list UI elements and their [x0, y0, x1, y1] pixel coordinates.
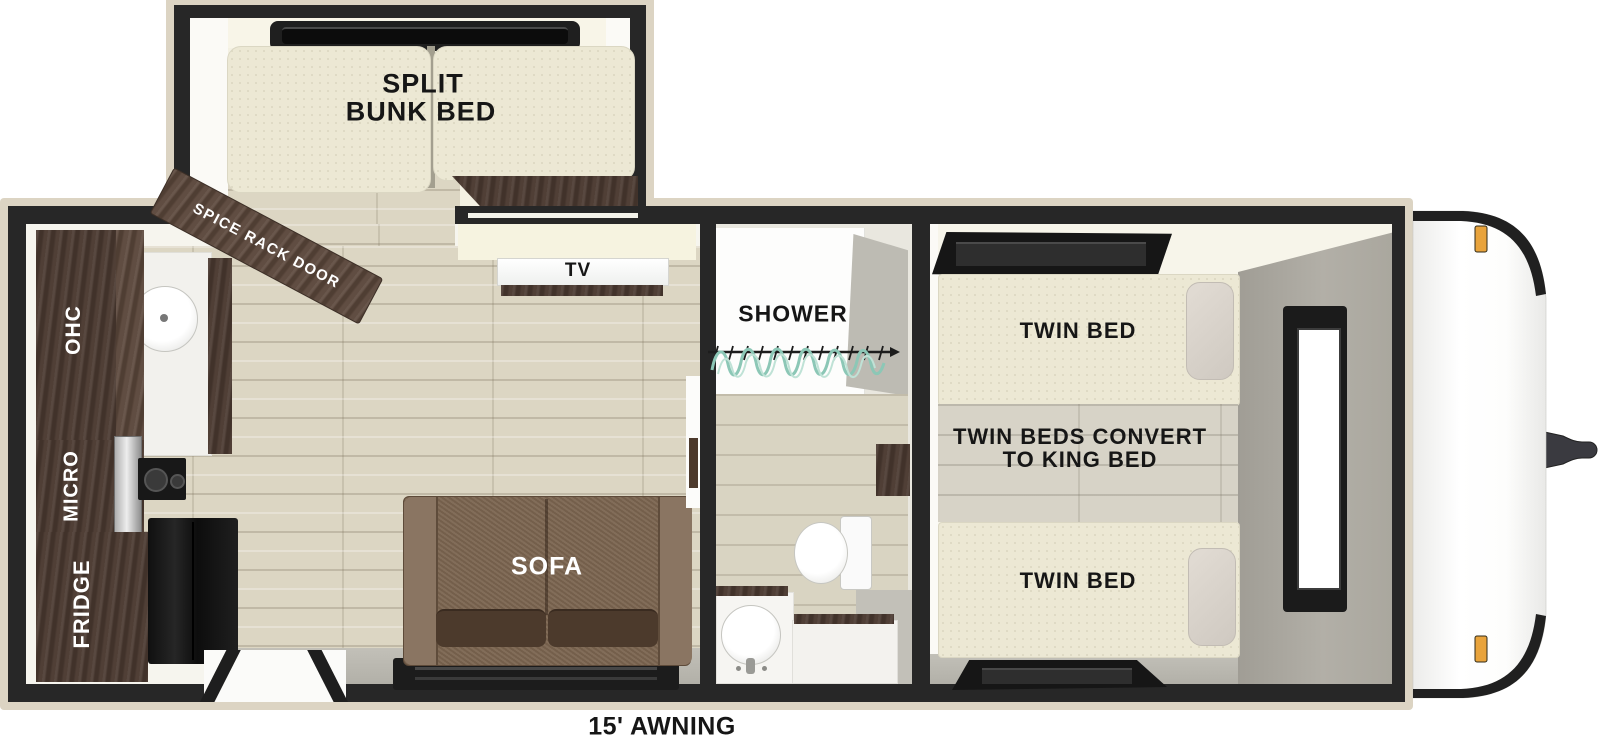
- stove: [138, 458, 186, 500]
- fridge-label: FRIDGE: [69, 559, 95, 648]
- bath-vanity-backsplash: [716, 586, 788, 596]
- sofa-label: SOFA: [511, 553, 583, 582]
- split-bunk-bed-label-line1: SPLIT: [382, 69, 464, 100]
- roof-vent-inner: [956, 242, 1146, 266]
- shower-label: SHOWER: [738, 301, 848, 328]
- bunk-window-glass: [282, 27, 568, 44]
- bath-pocket-door: [689, 438, 698, 488]
- front-cap: [1405, 200, 1600, 712]
- bedroom-roof-vent: [932, 232, 1172, 276]
- floorplan: SPLIT BUNK BED TV SPICE RACK DOOR OHC MI…: [0, 0, 1600, 742]
- bedroom-floor-vent: [952, 660, 1167, 690]
- bath-sink: [721, 605, 781, 665]
- pillow-rear: [1186, 282, 1234, 380]
- toilet-bowl: [794, 522, 848, 584]
- stove-burner-small: [170, 474, 185, 489]
- micro-label: MICRO: [61, 450, 84, 522]
- bedroom-window: [1283, 306, 1347, 612]
- shower-curtain: [704, 330, 904, 390]
- twin-bed-rear-label: TWIN BED: [1020, 318, 1137, 344]
- sofa-arm-left: [404, 497, 438, 665]
- fridge-appliance: [148, 518, 238, 664]
- pillow-front: [1188, 548, 1236, 646]
- sofa-seat-left: [436, 609, 546, 647]
- fridge-door-seam: [192, 522, 194, 660]
- sink-faucet: [160, 314, 168, 322]
- sofa-seat-right: [548, 609, 658, 647]
- kitchen-base-cabinets: [208, 258, 232, 454]
- twin-bed-front-label: TWIN BED: [1020, 568, 1137, 594]
- ohc-label: OHC: [62, 305, 86, 355]
- hitch-coupler: [1540, 431, 1597, 469]
- stove-burner-large: [144, 468, 168, 492]
- sofa-arm-right: [658, 497, 692, 665]
- marker-light-top: [1475, 226, 1487, 252]
- bath-faucet-knob-right: [762, 666, 767, 671]
- curtain-rod-end: [890, 347, 900, 357]
- cap-trim: [1405, 206, 1413, 702]
- sofa: SOFA: [403, 496, 691, 666]
- tv-cabinet-top: [458, 224, 696, 260]
- step-mat-line1: [415, 667, 657, 670]
- bath-counter-step-top: [794, 614, 894, 624]
- awning-label: 15' AWNING: [588, 713, 736, 742]
- overhead-cabinet-sideface: [116, 230, 144, 440]
- bath-cabinet: [876, 444, 910, 496]
- cap-body: [1413, 211, 1546, 698]
- bath-faucet-knob-left: [736, 666, 741, 671]
- bedroom-window-glass: [1297, 328, 1341, 590]
- bath-counter-step: [792, 620, 898, 684]
- marker-light-bottom: [1475, 636, 1487, 662]
- bedroom-left-wallface: [930, 224, 938, 684]
- tv-label: TV: [565, 260, 591, 282]
- floor-vent-inner: [982, 668, 1132, 684]
- split-bunk-bed-label-line2: BUNK BED: [346, 97, 497, 128]
- bath-faucet: [746, 658, 755, 674]
- tv-wall-sliver: [468, 213, 638, 218]
- convert-label-line2: TO KING BED: [1003, 447, 1158, 473]
- step-mat-line2: [415, 677, 657, 680]
- tv-cabinet-base: [501, 285, 663, 296]
